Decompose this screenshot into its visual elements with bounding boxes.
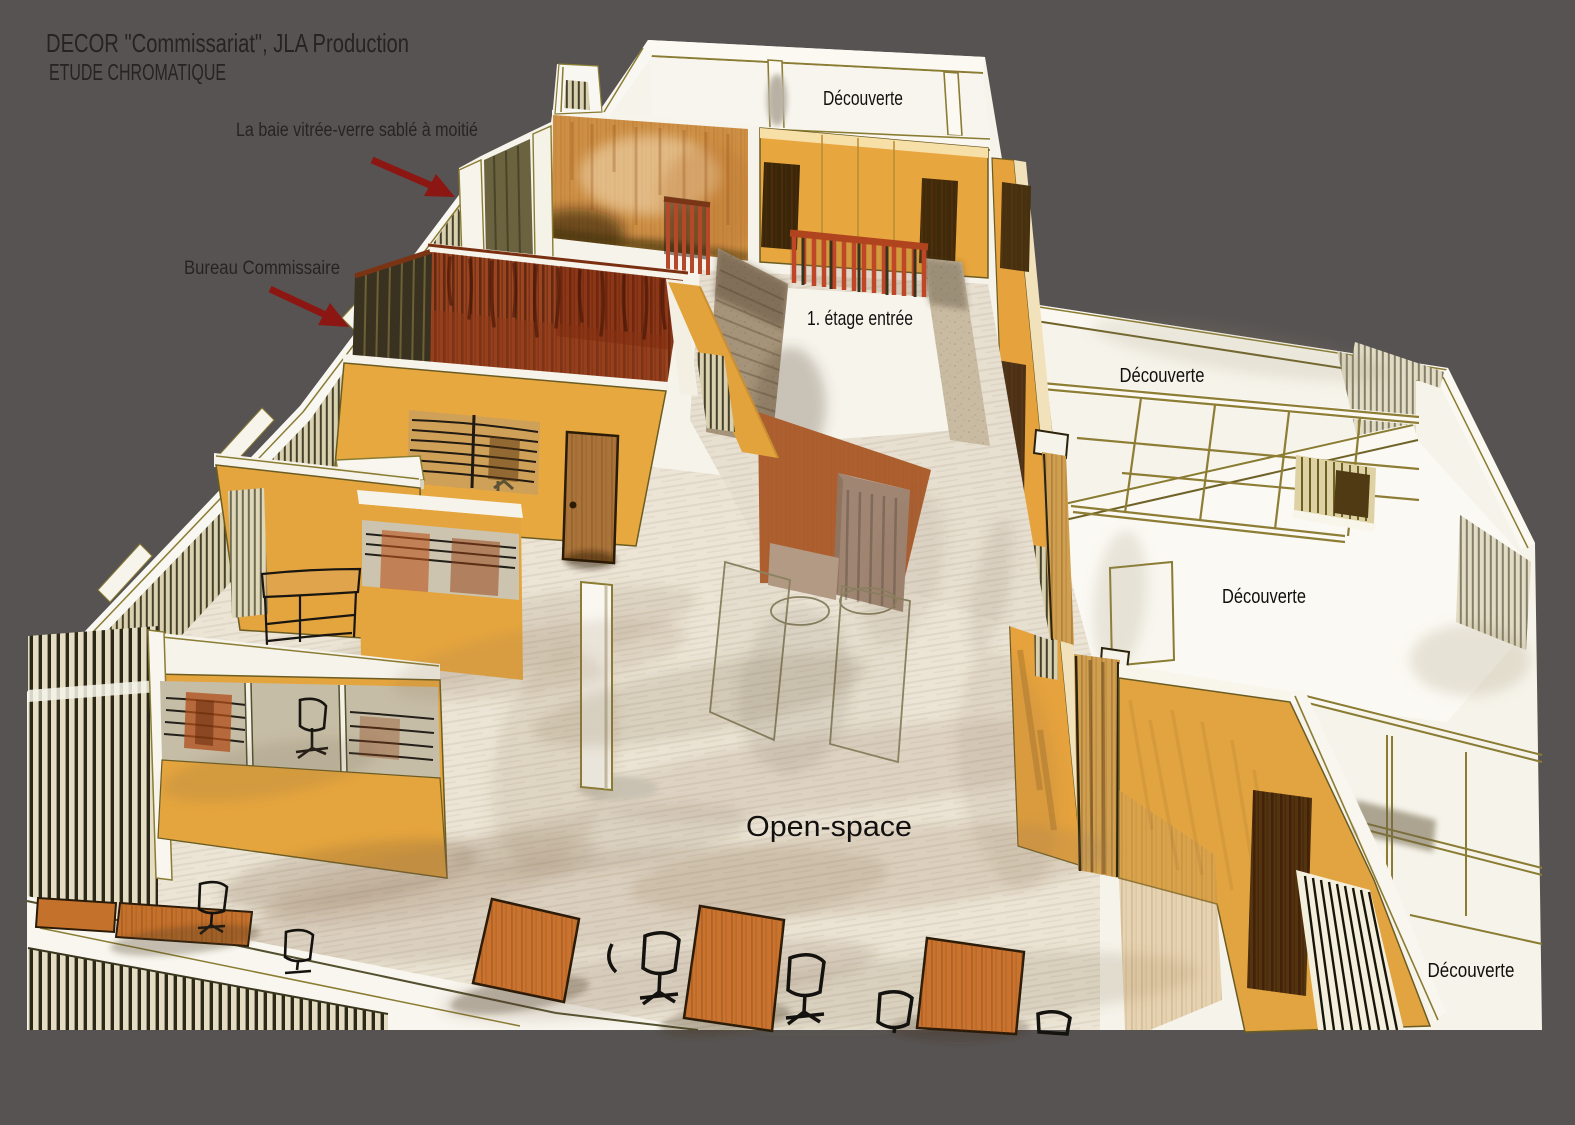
svg-text:Découverte: Découverte [823, 88, 903, 110]
svg-text:La baie vitrée-verre sablé à m: La baie vitrée-verre sablé à moitié [236, 120, 478, 141]
svg-text:ETUDE CHROMATIQUE: ETUDE CHROMATIQUE [49, 59, 226, 85]
svg-text:Découverte: Découverte [1428, 960, 1515, 982]
svg-text:Découverte: Découverte [1120, 365, 1205, 387]
svg-text:1. étage entrée: 1. étage entrée [807, 308, 913, 330]
svg-text:Découverte: Découverte [1222, 586, 1306, 608]
svg-text:Bureau Commissaire: Bureau Commissaire [184, 258, 340, 279]
svg-text:Open-space: Open-space [746, 811, 912, 843]
svg-text:DECOR "Commissariat", JLA Prod: DECOR "Commissariat", JLA Production [46, 28, 409, 58]
